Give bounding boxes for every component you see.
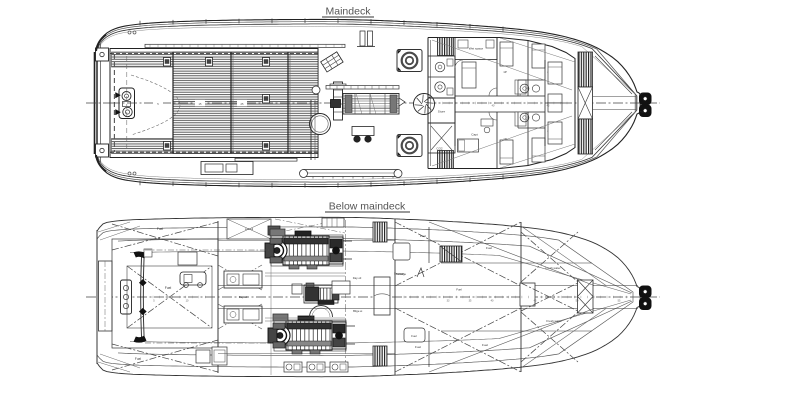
- svg-text:1P: 1P: [503, 70, 507, 74]
- svg-text:Fuel: Fuel: [415, 345, 421, 349]
- svg-text:Fuel: Fuel: [135, 357, 141, 361]
- svg-text:Store: Store: [438, 110, 446, 114]
- svg-text:Maindeck: Maindeck: [326, 6, 372, 18]
- svg-text:Fuel: Fuel: [165, 286, 172, 290]
- svg-text:Fresh water: Fresh water: [545, 266, 560, 270]
- svg-text:Fuel: Fuel: [482, 343, 488, 347]
- svg-text:Sewage: Sewage: [394, 272, 405, 276]
- svg-text:Fuel: Fuel: [456, 288, 462, 292]
- svg-text:Lub oil: Lub oil: [245, 227, 254, 231]
- svg-text:Fuel: Fuel: [411, 334, 417, 338]
- svg-text:Fuel: Fuel: [420, 234, 426, 238]
- svg-text:Fresh water: Fresh water: [546, 319, 561, 323]
- svg-text:Capt: Capt: [471, 133, 478, 137]
- svg-text:Wet space: Wet space: [469, 47, 484, 51]
- svg-text:Below maindeck: Below maindeck: [329, 201, 406, 213]
- svg-text:Day oil: Day oil: [353, 276, 362, 280]
- svg-text:Day oil: Day oil: [239, 295, 248, 299]
- svg-text:Bilge w.: Bilge w.: [353, 309, 363, 313]
- svg-text:CO2: CO2: [436, 147, 443, 151]
- svg-text:Fuel: Fuel: [157, 227, 163, 231]
- svg-text:Fuel: Fuel: [486, 246, 492, 250]
